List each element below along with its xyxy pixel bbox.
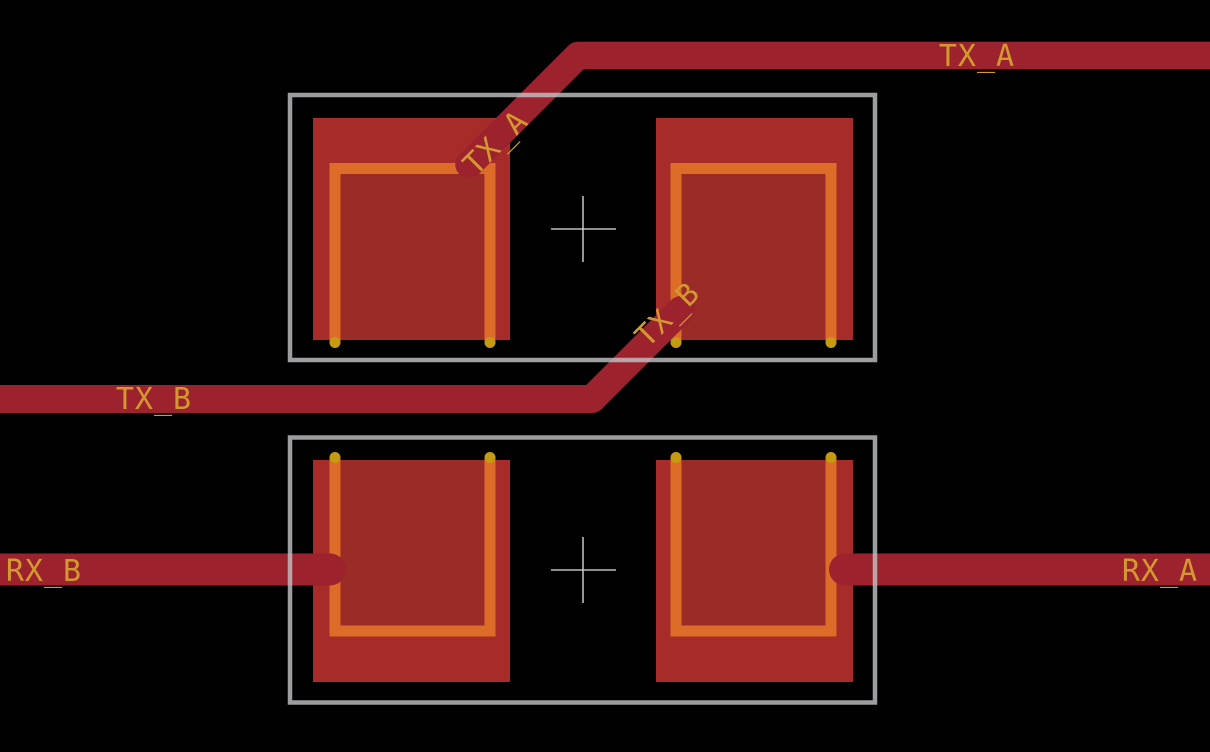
footprint-top-pad-1-inner-window xyxy=(341,174,485,340)
net-label-tx-a-horizontal[interactable]: TX_A xyxy=(939,39,1015,74)
pad-end-dot xyxy=(826,337,837,348)
pad-end-dot xyxy=(330,337,341,348)
footprint-bottom-pad-1-inner-window xyxy=(341,460,485,626)
pad-end-dot xyxy=(671,452,682,463)
pad-end-dot xyxy=(826,452,837,463)
footprint-bottom-pad-2-inner-window xyxy=(682,460,826,626)
net-label-rx-b[interactable]: RX_B xyxy=(6,554,82,589)
net-label-rx-a[interactable]: RX_A xyxy=(1122,554,1198,589)
footprint-top-pad-2-inner-window xyxy=(682,174,826,340)
net-label-tx-b-horizontal[interactable]: TX_B xyxy=(116,382,192,417)
pad-end-dot xyxy=(485,452,496,463)
pcb-canvas[interactable]: TX_A TX_A TX_B TX_B RX_B RX_A xyxy=(0,0,1210,752)
pad-end-dot xyxy=(485,337,496,348)
pad-end-dot xyxy=(330,452,341,463)
pad-end-dot xyxy=(671,337,682,348)
